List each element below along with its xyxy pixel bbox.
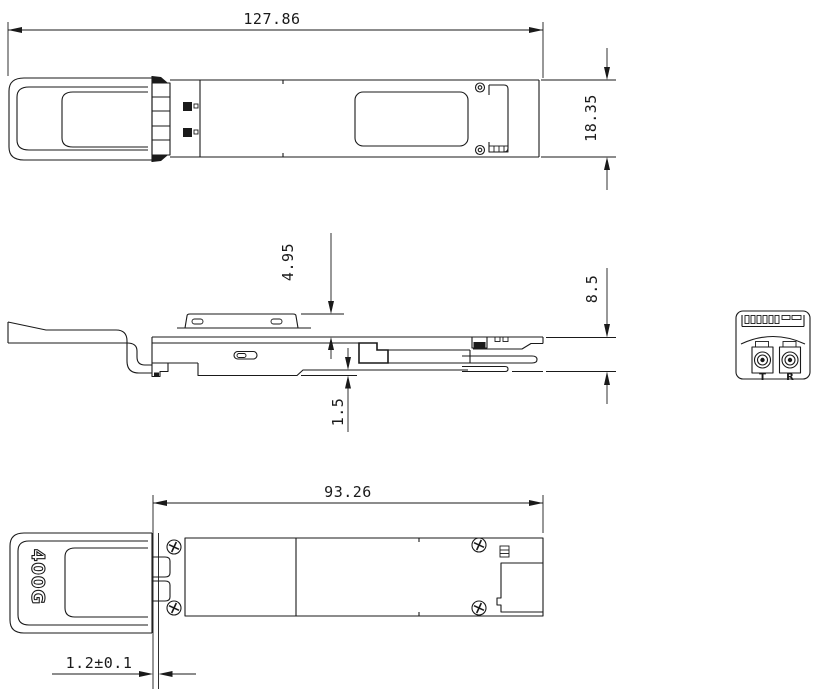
rear-step [359, 343, 388, 363]
screw-phillips-icon [167, 540, 182, 555]
pull-tab-bottom: 400G [10, 533, 152, 633]
dimension-pad-height: 4.95 [279, 233, 344, 359]
bottom-rail [198, 363, 468, 376]
latch-collar-top [152, 76, 170, 162]
screw-phillips-icon [472, 601, 487, 616]
module-body-top [170, 80, 539, 157]
port-rx-label: R [786, 372, 794, 383]
emi-pad [183, 128, 192, 137]
screw-phillips-icon [167, 601, 182, 616]
label-recess [355, 92, 468, 146]
dim-body-height-text: 8.5 [583, 275, 601, 304]
bottom-view: 93.26 400G [10, 483, 543, 689]
dim-insertion-length-text: 93.26 [324, 483, 372, 501]
dimension-overall-length: 127.86 [8, 10, 543, 78]
module-body-bottom [185, 538, 543, 616]
screw-icon [476, 83, 485, 92]
dim-overall-width-text: 18.35 [582, 94, 600, 142]
connector-recess [497, 563, 543, 612]
dimension-body-height: 8.5 [546, 268, 616, 404]
pull-tab-top [9, 78, 152, 160]
dim-pad-height-text: 4.95 [279, 243, 297, 281]
screw-icon [476, 146, 485, 155]
dimension-flange-offset: 1.2±0.1 [52, 654, 196, 677]
edge-connector-side [462, 337, 543, 372]
optical-port-tx: T [752, 342, 773, 384]
end-view: T R [736, 311, 810, 383]
pull-tab-side [8, 322, 152, 373]
pull-tab-label: 400G [27, 549, 48, 605]
dimension-insertion-length: 93.26 [153, 483, 543, 689]
side-view: 4.95 8.5 1.5 [8, 233, 616, 432]
port-tx-label: T [759, 372, 766, 383]
vent-detail [500, 546, 509, 557]
emi-pad [183, 102, 192, 111]
latch-collar-bottom [152, 540, 181, 616]
dimension-bottom-rail: 1.5 [301, 348, 357, 432]
heatsink-pad [177, 314, 311, 328]
emi-finger-strip [742, 315, 804, 327]
dim-bottom-rail-text: 1.5 [329, 398, 347, 427]
top-view: 127.86 18.35 [8, 10, 616, 190]
screw-phillips-icon [472, 538, 487, 553]
pcb-tongue [462, 356, 537, 363]
end-bracket [489, 85, 508, 152]
technical-drawing: 127.86 18.35 [0, 0, 822, 689]
dim-flange-offset-text: 1.2±0.1 [66, 654, 133, 672]
transceiver-outline-drawing: 127.86 18.35 [0, 0, 822, 689]
face-dome-line [741, 337, 805, 345]
dimension-overall-width: 18.35 [541, 48, 616, 190]
dim-overall-length-text: 127.86 [243, 10, 300, 28]
optical-port-rx: R [780, 342, 801, 384]
